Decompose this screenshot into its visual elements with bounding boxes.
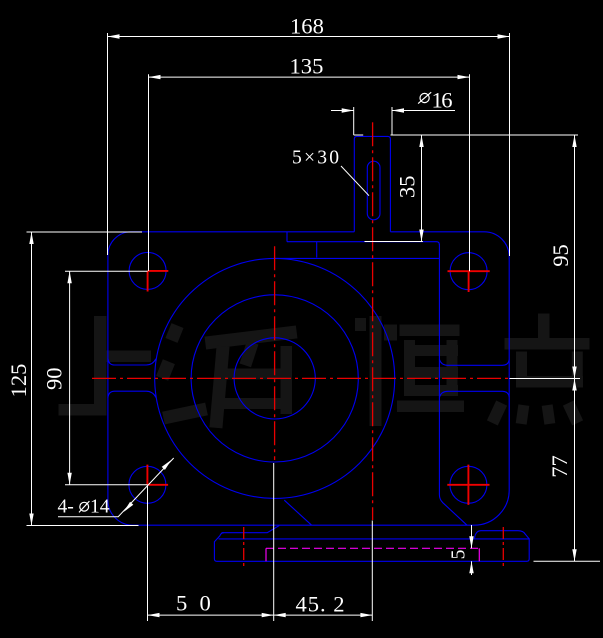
svg-text:5: 5 bbox=[176, 590, 187, 615]
svg-text:125: 125 bbox=[6, 364, 31, 398]
svg-text:135: 135 bbox=[290, 54, 324, 79]
svg-text:16: 16 bbox=[432, 87, 453, 112]
svg-text:168: 168 bbox=[290, 13, 324, 38]
svg-text:77: 77 bbox=[547, 455, 572, 478]
svg-text:4-: 4- bbox=[58, 497, 74, 518]
svg-text:90: 90 bbox=[41, 367, 66, 390]
svg-text:0: 0 bbox=[200, 590, 211, 615]
svg-text:14: 14 bbox=[90, 497, 110, 518]
svg-text:35: 35 bbox=[394, 176, 419, 199]
svg-text:95: 95 bbox=[548, 244, 573, 267]
svg-text:5: 5 bbox=[449, 549, 470, 559]
svg-text:45. 2: 45. 2 bbox=[296, 592, 345, 617]
